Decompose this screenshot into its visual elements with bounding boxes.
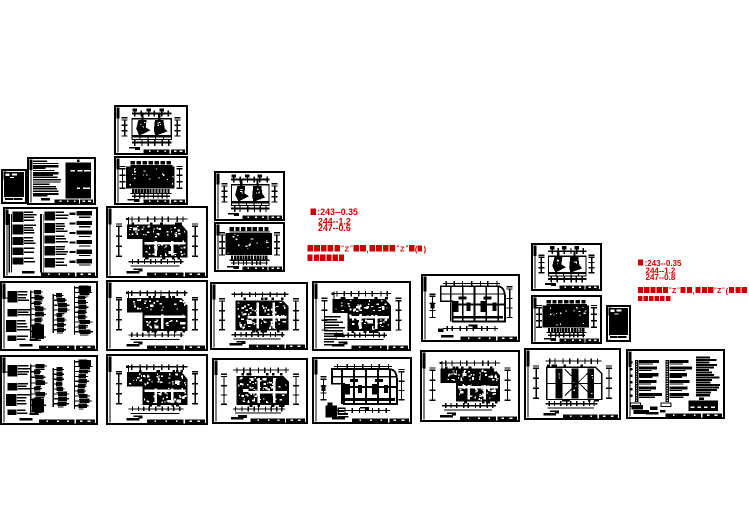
svg-text:": " [406, 245, 409, 252]
svg-text:): ) [424, 245, 427, 254]
svg-text:(: ( [415, 245, 418, 254]
svg-text:,: , [367, 245, 369, 254]
svg-text:": " [677, 288, 680, 294]
svg-text:,: , [693, 289, 695, 296]
svg-text:Z: Z [345, 245, 350, 254]
svg-text:Z: Z [400, 245, 405, 254]
svg-text:247--0.8: 247--0.8 [646, 273, 676, 282]
svg-text:247--0.6: 247--0.6 [318, 223, 351, 233]
svg-text:": " [350, 245, 353, 252]
